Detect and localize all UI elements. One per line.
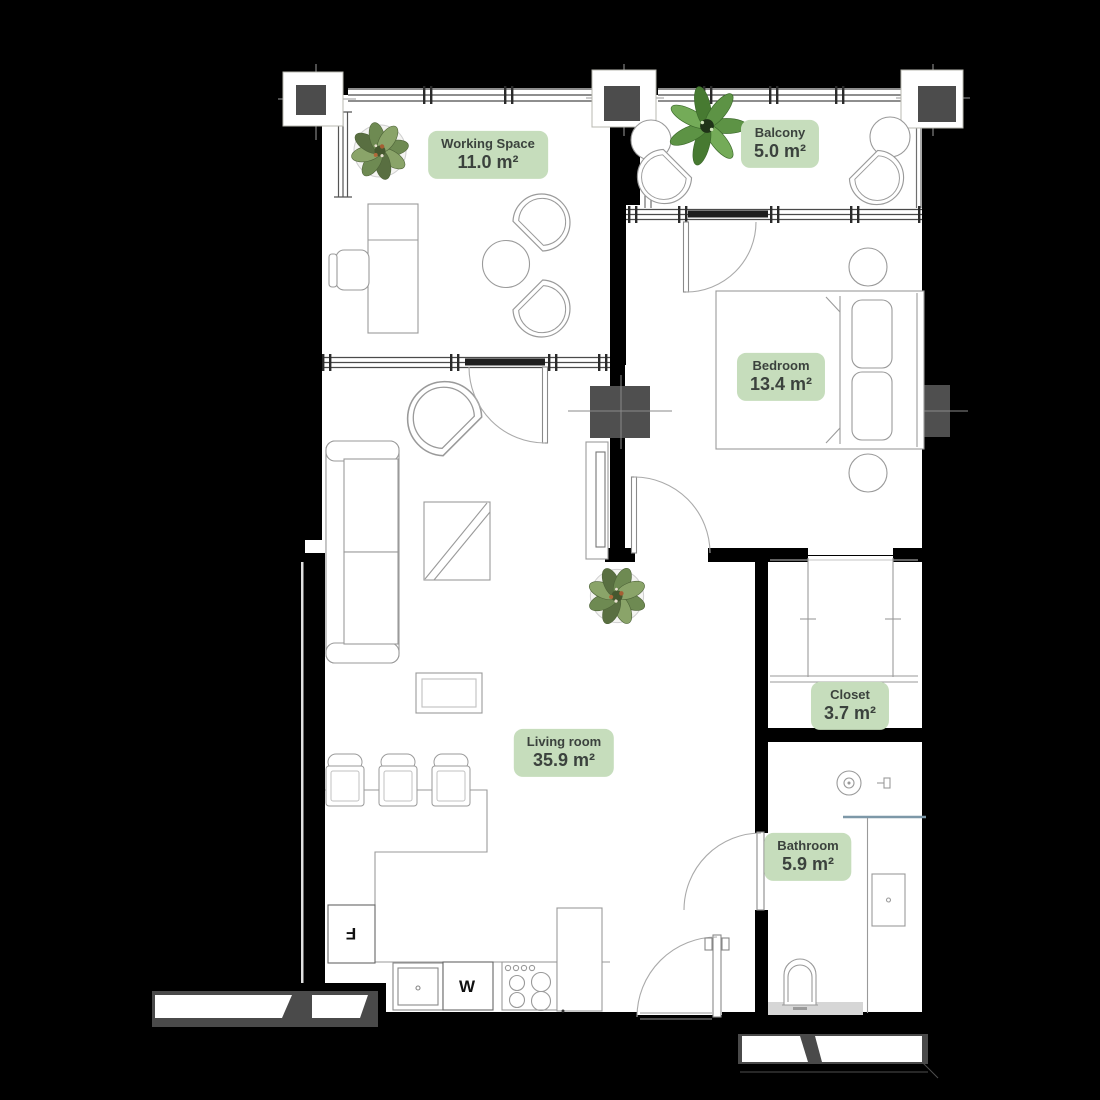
room-label-balcony: Balcony 5.0 m² — [741, 120, 819, 168]
tv — [596, 452, 605, 547]
room-name: Living room — [527, 734, 601, 750]
room-name: Closet — [824, 687, 876, 703]
toilet — [784, 959, 816, 1005]
room-label-closet: Closet 3.7 m² — [811, 682, 889, 730]
washer-letter: W — [459, 977, 475, 997]
exterior-slab-bottom-left — [146, 983, 386, 1035]
round-table — [483, 241, 530, 288]
bar-stool — [379, 754, 417, 806]
bathroom-door-leaf — [757, 832, 764, 910]
room-label-bedroom: Bedroom 13.4 m² — [737, 353, 825, 401]
sofa-cushion — [344, 552, 398, 644]
working-space-door-leaf — [543, 367, 548, 443]
room-area: 5.0 m² — [754, 141, 806, 163]
floor-plan: Working Space 11.0 m² Balcony 5.0 m² Bed… — [0, 0, 1100, 1100]
room-area: 3.7 m² — [824, 703, 876, 725]
nightstand — [849, 248, 887, 286]
balcony-door-threshold — [688, 211, 768, 218]
room-name: Working Space — [441, 136, 535, 152]
bar-stool — [432, 754, 470, 806]
room-area: 13.4 m² — [750, 374, 812, 396]
desk — [368, 204, 418, 333]
room-area: 5.9 m² — [777, 854, 838, 876]
floor-plan-drawing — [0, 0, 1100, 1100]
room-label-living-room: Living room 35.9 m² — [514, 729, 614, 777]
room-name: Balcony — [754, 125, 806, 141]
exterior-slab-bottom-right — [730, 1026, 938, 1078]
nightstand — [849, 454, 887, 492]
balcony-door-leaf — [684, 222, 689, 292]
room-area: 35.9 m² — [527, 750, 601, 772]
entry-door-leaf — [713, 935, 721, 1017]
room-area: 11.0 m² — [441, 152, 535, 174]
side-table — [870, 117, 910, 157]
tall-cabinet — [557, 908, 602, 1011]
sofa-cushion — [344, 459, 398, 552]
bedroom-door-leaf — [632, 477, 637, 553]
room-name: Bathroom — [777, 838, 838, 854]
fridge-letter: F — [346, 923, 356, 943]
room-name: Bedroom — [750, 358, 812, 374]
desk-chair — [336, 250, 369, 290]
left-wall-glazing-line — [301, 562, 304, 1002]
sliding-door-working-space — [465, 359, 545, 366]
room-label-bathroom: Bathroom 5.9 m² — [764, 833, 851, 881]
bar-stool — [326, 754, 364, 806]
room-label-working-space: Working Space 11.0 m² — [428, 131, 548, 179]
